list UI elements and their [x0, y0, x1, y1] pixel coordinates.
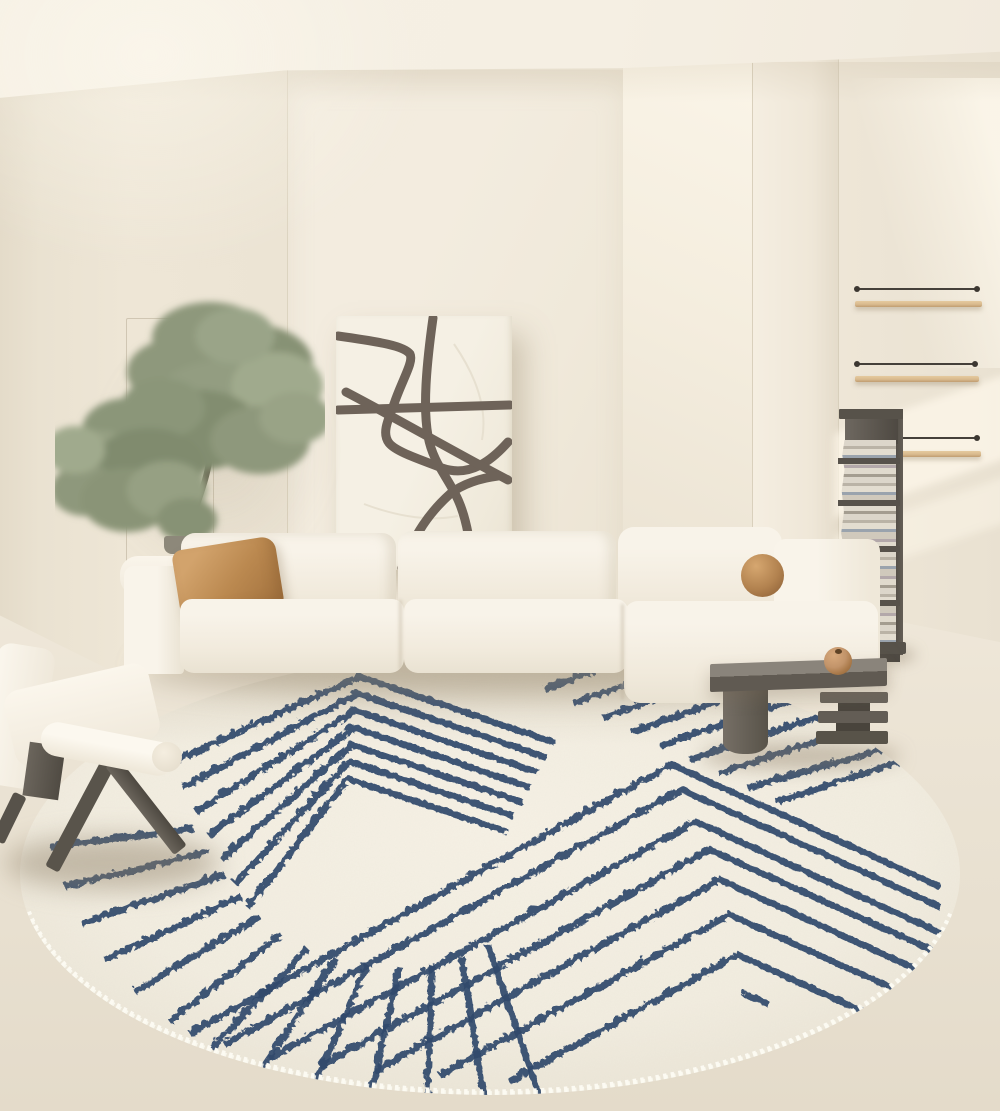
- ball-pillow: [741, 554, 784, 597]
- olive-tree: [55, 278, 325, 568]
- shelf-rail-2: [857, 363, 975, 365]
- wall-shelf-2: [855, 376, 979, 382]
- tree-foliage: [55, 302, 325, 542]
- side-table-slab-3: [816, 731, 888, 744]
- olive-tree-drawing: [55, 278, 325, 568]
- shelf-rail-3: [895, 437, 977, 439]
- living-room-scene: [0, 0, 1000, 1111]
- sofa-seam: [399, 600, 402, 670]
- chair-armrest-cap: [152, 742, 182, 772]
- book-tower-shelf-plate: [838, 500, 900, 506]
- chair-shadow: [5, 836, 220, 890]
- side-table-slab-1: [820, 692, 888, 703]
- shelf-rail-1: [857, 288, 977, 290]
- side-table-leg: [723, 688, 768, 754]
- wall-shelf-3: [893, 451, 981, 457]
- ball-vase-opening: [835, 649, 842, 654]
- sunlight-patch-upper: [845, 78, 1000, 368]
- side-table-spacer-2: [836, 723, 870, 731]
- side-table-spacer-1: [838, 703, 870, 711]
- wall-shelf-1: [855, 301, 982, 307]
- sofa-seat-left: [180, 599, 404, 673]
- book-tower-shelf-plate: [838, 458, 900, 464]
- sofa-seat-right: [404, 599, 628, 673]
- side-table-slab-2: [818, 711, 888, 723]
- sofa-seam: [621, 604, 624, 700]
- book-tower-top-plate: [839, 409, 903, 419]
